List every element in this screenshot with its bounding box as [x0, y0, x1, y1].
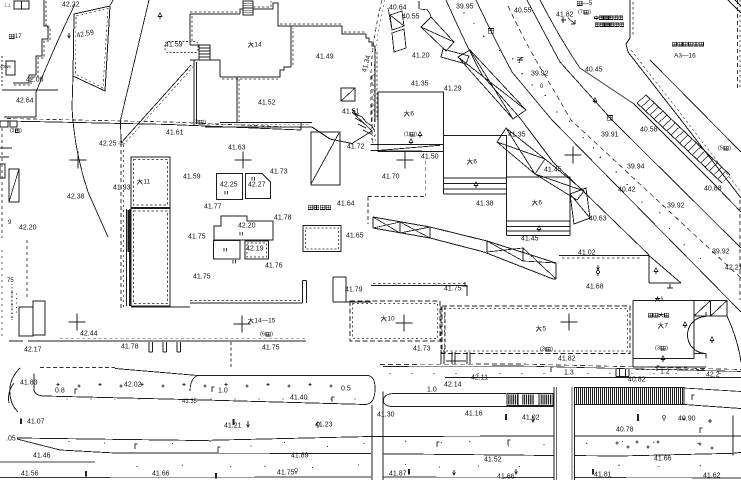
svg-text:41.16: 41.16 [465, 411, 483, 418]
svg-text:—5: —5 [583, 1, 593, 7]
svg-text:41.73: 41.73 [270, 169, 288, 176]
svg-text:40.58: 40.58 [640, 127, 658, 134]
svg-text:41.70: 41.70 [382, 174, 400, 181]
svg-text:40.90: 40.90 [678, 416, 696, 423]
svg-text:41.83: 41.83 [20, 380, 38, 387]
svg-text:41.59: 41.59 [183, 174, 201, 181]
svg-text:17: 17 [15, 34, 22, 40]
svg-text:): ) [666, 346, 668, 352]
svg-text:41.75: 41.75 [277, 470, 295, 477]
svg-text:41.52: 41.52 [484, 457, 502, 464]
svg-text:41.45: 41.45 [544, 167, 562, 174]
svg-text:41.35: 41.35 [182, 399, 198, 405]
svg-text:41.02: 41.02 [522, 415, 540, 422]
svg-text:41.45: 41.45 [521, 236, 539, 243]
svg-text:41.66: 41.66 [654, 456, 672, 463]
svg-text:41.75: 41.75 [262, 345, 280, 352]
svg-text:39.92: 39.92 [531, 71, 549, 78]
svg-text:⊥⊥: ⊥⊥ [4, 3, 12, 8]
svg-text:42.21: 42.21 [725, 265, 741, 272]
svg-text:42.02: 42.02 [124, 382, 142, 389]
svg-text:42.06: 42.06 [26, 77, 44, 84]
svg-text:42.64: 42.64 [16, 98, 34, 105]
svg-text:41.64: 41.64 [337, 201, 355, 208]
svg-text:41.73: 41.73 [413, 346, 431, 353]
svg-text:41.76: 41.76 [265, 263, 283, 270]
svg-text:41.40: 41.40 [290, 395, 308, 402]
svg-text:): ) [589, 10, 591, 16]
svg-text:41.75: 41.75 [193, 274, 211, 281]
svg-text:(5: (5 [718, 146, 723, 152]
svg-text:41.81: 41.81 [594, 472, 612, 479]
svg-text:5: 5 [542, 325, 546, 332]
svg-text:41.46: 41.46 [33, 453, 51, 460]
svg-text:75: 75 [7, 278, 14, 284]
svg-text:1.2: 1.2 [660, 369, 670, 376]
svg-text:41.52: 41.52 [258, 100, 276, 107]
svg-text:41.66: 41.66 [152, 471, 170, 478]
svg-text:(3: (3 [10, 128, 15, 134]
svg-text:42.20: 42.20 [238, 223, 256, 230]
svg-text:39.92: 39.92 [712, 249, 730, 256]
svg-text:10: 10 [387, 315, 395, 322]
svg-text:41.82: 41.82 [556, 12, 574, 19]
svg-text:0.5: 0.5 [341, 386, 351, 393]
svg-text:41.02: 41.02 [578, 250, 596, 257]
svg-text:41.72: 41.72 [347, 144, 365, 151]
svg-text:): ) [204, 120, 206, 126]
svg-text:42.22: 42.22 [62, 2, 80, 9]
svg-text:41.49: 41.49 [316, 54, 334, 61]
svg-text:39.92: 39.92 [667, 203, 685, 210]
svg-text:40.55: 40.55 [402, 14, 420, 21]
svg-text:42.14: 42.14 [444, 382, 462, 389]
svg-text:40.42: 40.42 [618, 187, 636, 194]
svg-text:1.0: 1.0 [427, 387, 437, 394]
svg-text:39.94: 39.94 [627, 164, 645, 171]
svg-text:42.19: 42.19 [246, 246, 264, 253]
svg-text:42.27: 42.27 [248, 182, 266, 189]
svg-text:6: 6 [660, 297, 663, 303]
svg-text:42.25: 42.25 [99, 141, 117, 148]
svg-text:11: 11 [143, 178, 150, 185]
svg-text:): ) [271, 332, 273, 338]
svg-text:40.63: 40.63 [589, 216, 607, 223]
svg-text:): ) [551, 347, 553, 353]
svg-text:42.38: 42.38 [67, 194, 85, 201]
svg-text:41.68: 41.68 [586, 284, 604, 291]
svg-text:41.35: 41.35 [411, 81, 429, 88]
svg-text:41.75: 41.75 [444, 286, 462, 293]
svg-text:40.64: 40.64 [389, 5, 407, 12]
svg-text:40.68: 40.68 [704, 186, 722, 193]
svg-text:41.07: 41.07 [27, 419, 45, 426]
svg-text:(3: (3 [193, 120, 198, 126]
svg-text:41.56: 41.56 [21, 471, 39, 478]
svg-text:1.0: 1.0 [218, 388, 228, 395]
svg-text:42.17: 42.17 [24, 347, 42, 354]
svg-text:7: 7 [664, 322, 668, 329]
svg-text:41.38: 41.38 [476, 201, 494, 208]
svg-text:42.44: 42.44 [80, 331, 98, 338]
svg-text:41.30: 41.30 [377, 412, 395, 419]
svg-text:41.87: 41.87 [389, 471, 407, 478]
svg-text:41.23: 41.23 [315, 422, 333, 429]
svg-text:1.3: 1.3 [564, 370, 574, 377]
svg-text:41.79: 41.79 [345, 287, 363, 294]
svg-text:14: 14 [254, 41, 262, 48]
svg-text:40N6: 40N6 [0, 64, 11, 69]
svg-text:42.2: 42.2 [706, 372, 720, 379]
svg-text:6: 6 [538, 199, 542, 206]
svg-text:(3: (3 [655, 346, 660, 352]
svg-text:(7: (7 [578, 10, 583, 16]
svg-text:41.29: 41.29 [444, 86, 462, 93]
svg-text:41.77: 41.77 [204, 204, 222, 211]
svg-text:41.82: 41.82 [558, 356, 576, 363]
svg-text:41.65: 41.65 [346, 233, 364, 240]
svg-text:): ) [729, 146, 731, 152]
svg-text:41.21: 41.21 [224, 423, 242, 430]
svg-text:40.78: 40.78 [616, 427, 634, 434]
svg-text:42.11: 42.11 [471, 375, 488, 382]
svg-text:41.20: 41.20 [412, 53, 430, 60]
svg-text:41.35: 41.35 [508, 132, 526, 139]
svg-text:42.20: 42.20 [19, 225, 37, 232]
svg-text:40.55: 40.55 [514, 8, 532, 15]
svg-text:A3—16: A3—16 [674, 52, 696, 59]
svg-text:0.8: 0.8 [55, 388, 65, 395]
svg-text:42.25: 42.25 [220, 182, 238, 189]
svg-text:41.50: 41.50 [421, 154, 439, 161]
svg-text:39.95: 39.95 [456, 4, 474, 11]
svg-text:40.82: 40.82 [628, 377, 646, 384]
svg-text:40.45: 40.45 [585, 67, 603, 74]
svg-text:39.91: 39.91 [601, 132, 619, 139]
svg-text:6: 6 [473, 158, 477, 165]
svg-text:41.63: 41.63 [228, 145, 246, 152]
svg-text:41.66: 41.66 [497, 474, 515, 480]
svg-text:(6: (6 [260, 332, 265, 338]
svg-text:14—15: 14—15 [254, 317, 275, 324]
svg-text:41.78: 41.78 [121, 344, 139, 351]
svg-text:41.61: 41.61 [166, 130, 184, 137]
svg-text:41.93: 41.93 [113, 185, 131, 192]
svg-text:.05: .05 [6, 436, 16, 443]
svg-text:41.62: 41.62 [703, 473, 721, 480]
svg-text:41.59: 41.59 [165, 42, 183, 49]
svg-text:41.75: 41.75 [188, 234, 206, 241]
svg-text:6: 6 [410, 110, 414, 117]
svg-text:41.78: 41.78 [274, 215, 292, 222]
svg-text:41.89: 41.89 [291, 453, 309, 460]
svg-text:41.51: 41.51 [342, 109, 360, 116]
svg-text:): ) [415, 132, 417, 138]
svg-text:(1: (1 [404, 132, 409, 138]
svg-text:(3: (3 [540, 347, 545, 353]
